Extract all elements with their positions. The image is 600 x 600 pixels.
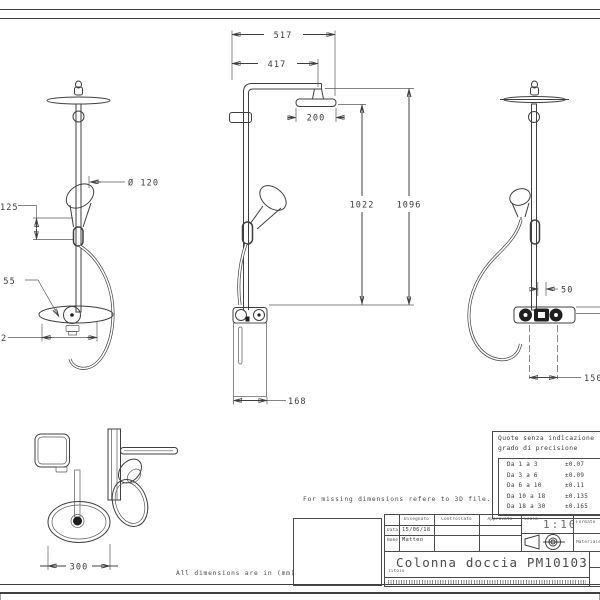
header-checked: Controllato — [435, 517, 478, 522]
date-value: 15/06/18 — [402, 527, 434, 533]
top-view-dimensions: 300 — [40, 544, 118, 573]
tolerance-range: Da 18 a 30 — [499, 502, 565, 513]
side-view — [39, 81, 113, 368]
tolerance-value: ±0.07 — [565, 460, 584, 471]
first-angle-projection-icon — [521, 533, 573, 551]
tolerance-header-line1: Quote senza indicazione — [498, 434, 600, 444]
dim-hand-shower-dia: Ø 120 — [128, 178, 159, 189]
label-date: Data — [387, 528, 399, 533]
scale-value: 1:10 — [543, 518, 573, 531]
dim-hose-height: 1022 — [350, 201, 375, 211]
tolerance-value: ±0.11 — [565, 481, 584, 492]
dim-head-dia-top: 300 — [70, 563, 89, 573]
tolerance-row: Da 3 a 6 ±0.09 — [499, 471, 600, 482]
dim-knob-dia: Ø 55 — [0, 276, 16, 287]
header-drawn: Disegnato — [400, 517, 433, 522]
dim-head-width: 200 — [307, 114, 326, 124]
back-view-dimensions: 50 150 — [530, 282, 600, 384]
scale-label: Scala — [524, 517, 544, 522]
tolerance-table-header: Quote senza indicazione grado di precisi… — [493, 432, 600, 454]
dim-total-width: 517 — [274, 31, 293, 41]
dim-total-height: 1096 — [397, 201, 422, 211]
tolerance-range: Da 10 a 18 — [499, 492, 565, 503]
tolerance-range: Da 1 a 3 — [499, 460, 565, 471]
top-view — [35, 429, 178, 543]
tolerance-value: ±0.09 — [565, 471, 584, 482]
tolerance-header-line2: grado di precisione — [498, 444, 600, 454]
dim-base-cut: 2 — [1, 334, 7, 344]
tolerance-row: Da 1 a 3 ±0.07 — [499, 460, 600, 471]
tolerance-range: Da 6 a 10 — [499, 481, 565, 492]
dim-hose-offset: 50 — [561, 286, 573, 296]
tolerance-row: Da 10 a 18 ±0.135 — [499, 492, 600, 503]
front-view-dimensions: 517 417 200 1022 1096 168 — [232, 31, 421, 408]
dim-valve-width: 150 — [584, 374, 600, 384]
front-view — [230, 84, 337, 397]
back-view — [469, 81, 600, 379]
tolerance-row: Da 18 a 30 ±0.165 — [499, 502, 600, 513]
note-units: All dimensions are in (mm) — [176, 570, 295, 577]
dim-bracket-offset: 125 — [0, 203, 19, 213]
header-approved: Approvato — [480, 517, 520, 522]
tolerance-range: Da 3 a 6 — [499, 471, 565, 482]
micro-text-strip — [388, 580, 586, 584]
material-label: Materiale — [576, 540, 600, 545]
drawing-sheet: Ø 120 125 Ø 55 2 — [0, 0, 600, 600]
format-label: Formato — [576, 520, 600, 525]
tolerance-table-body: Da 1 a 3 ±0.07 Da 3 a 6 ±0.09 Da 6 a 10 … — [498, 458, 600, 516]
note-missing-dimensions: For missing dimensions refere to 3D file… — [303, 496, 491, 503]
tolerance-value: ±0.165 — [565, 502, 588, 513]
label-name: Nome — [387, 538, 399, 543]
tolerance-value: ±0.135 — [565, 492, 588, 503]
tolerance-row: Da 6 a 10 ±0.11 — [499, 481, 600, 492]
title-block-side-box — [293, 518, 382, 586]
drawing-title: Colonna doccia PM10103 — [395, 555, 589, 570]
title-block: Disegnato Controllato Approvato Data Nom… — [384, 514, 600, 587]
name-value: Matteo — [402, 537, 434, 543]
dim-arm-width: 417 — [268, 60, 287, 70]
dim-base-width: 168 — [288, 397, 307, 407]
tolerance-table: Quote senza indicazione grado di precisi… — [492, 431, 600, 519]
